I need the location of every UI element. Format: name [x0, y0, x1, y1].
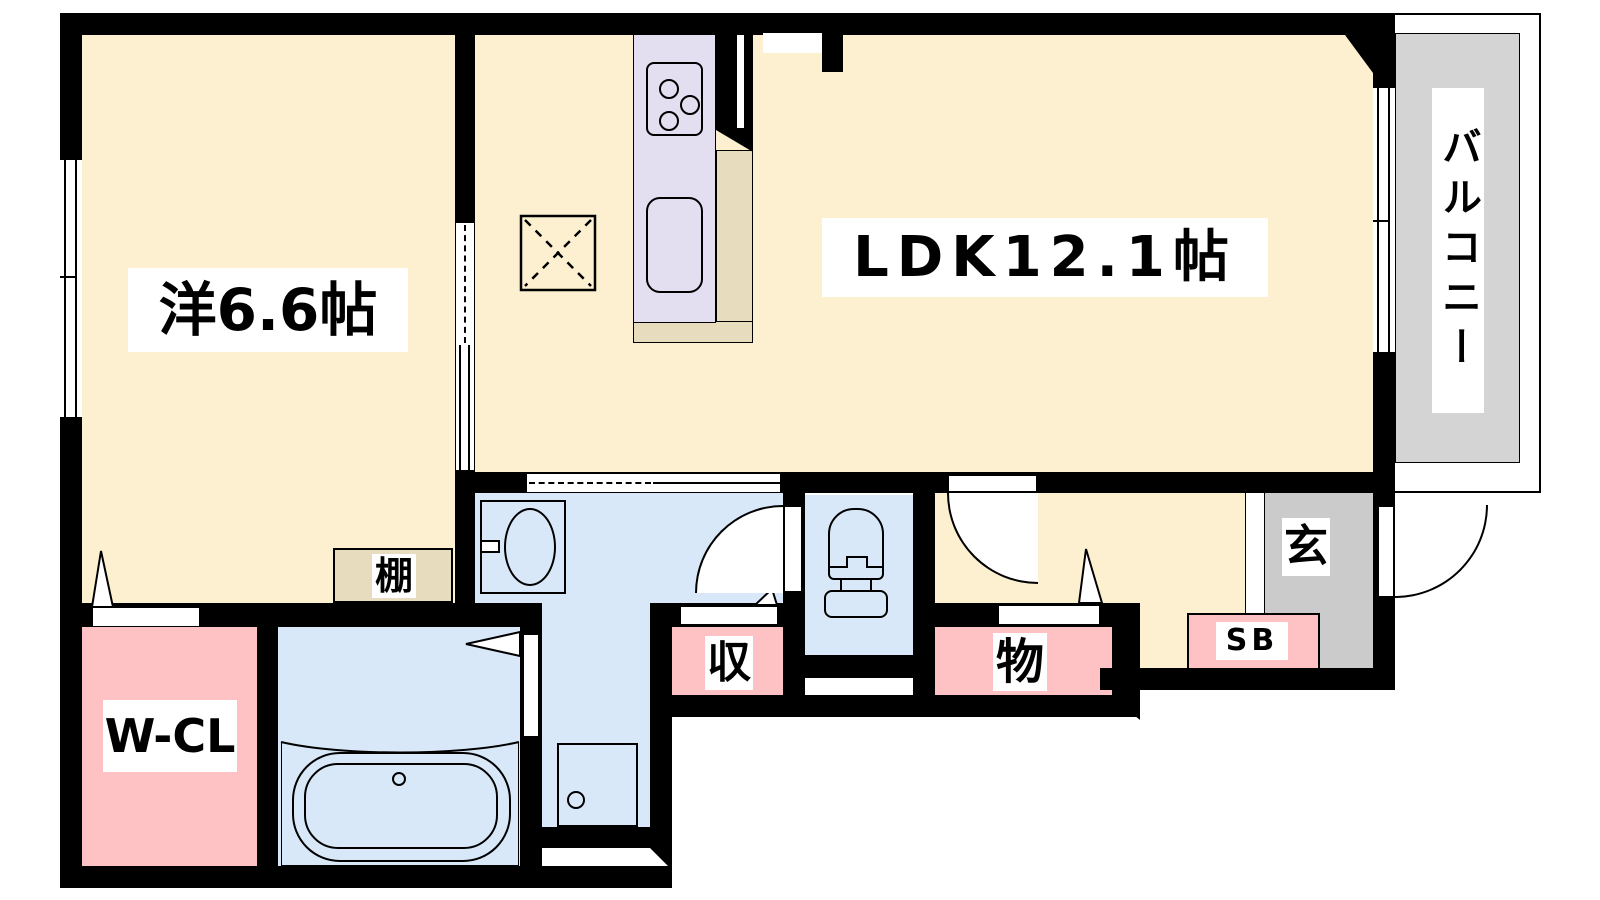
ldk-label: LDK12.1帖 — [822, 218, 1268, 297]
window-toilet-bottom — [805, 678, 913, 695]
bathroom-door-leaf — [522, 633, 540, 738]
pillar-slit — [737, 35, 744, 128]
kitchen-countertop-bottom — [633, 321, 753, 343]
wall-bottom-middle — [650, 695, 1120, 717]
wcl-label: W-CL — [103, 700, 237, 772]
floor-hatch-icon — [519, 214, 597, 292]
door-leaf-line — [653, 482, 780, 484]
stove-burner-icon — [680, 95, 700, 115]
wall-left — [60, 13, 82, 888]
wall-toilet-right — [913, 493, 935, 697]
front-door-swing — [1395, 505, 1488, 598]
toilet-seat-notch — [846, 556, 868, 568]
entrance-label: 玄 — [1282, 518, 1330, 576]
wall-corridor-bottom — [542, 827, 650, 848]
bathroom-door-wedge-icon — [462, 629, 524, 659]
front-door-leaf — [1377, 505, 1395, 598]
closet-label: 収 — [705, 636, 753, 690]
sliding-door-leaf — [456, 345, 474, 470]
washbasin-tap-icon — [480, 540, 500, 553]
wall-corridor-right — [650, 605, 672, 848]
wall-toilet-bottom — [805, 655, 913, 678]
wcl-opening — [92, 607, 200, 627]
closet-opening — [680, 606, 778, 625]
door-leaf-line — [459, 345, 461, 470]
stove-burner-icon — [659, 111, 679, 131]
door-leaf-line — [468, 345, 470, 470]
window-center-tick — [60, 276, 77, 278]
wall-kitchen-pillar2 — [822, 33, 843, 72]
balcony-label: バルコニー — [1432, 88, 1484, 413]
window-corridor-bottom — [542, 848, 650, 866]
storage-door-wedge-icon — [1074, 546, 1106, 606]
sliding-door-track — [527, 474, 653, 492]
sliding-door-dashed-line — [529, 482, 651, 484]
western-room-label: 洋6.6帖 — [128, 268, 408, 352]
washing-machine-pan — [557, 743, 638, 827]
wall-top — [60, 13, 1395, 35]
window-balcony — [1373, 88, 1395, 352]
kitchen-sink — [646, 197, 703, 293]
window-kitchen-top — [763, 33, 822, 53]
sliding-door-dashed-line — [464, 225, 466, 343]
wall-kitchen-pillar — [716, 33, 753, 130]
storage-label: 物 — [993, 633, 1047, 691]
kitchen-stove — [646, 62, 703, 136]
toilet-bowl-icon — [828, 508, 884, 580]
storage-opening — [998, 605, 1100, 625]
toilet-door-leaf — [783, 505, 803, 593]
wall-wcl-bathroom — [257, 627, 278, 866]
washbasin-bowl-icon — [504, 508, 556, 586]
bathtub — [292, 752, 511, 862]
wcl-door-wedge-icon — [88, 548, 118, 610]
pan-drain-icon — [567, 791, 585, 809]
washbasin — [480, 500, 566, 594]
sliding-door-leaf — [653, 474, 780, 492]
window-frame-line — [75, 160, 77, 417]
window-western-room — [60, 160, 82, 417]
sliding-door-track — [456, 223, 474, 345]
floor-plan: 洋6.6帖 LDK12.1帖 バルコニー W-CL 棚 収 物 玄 SB — [0, 0, 1600, 900]
shelf-label: 棚 — [372, 554, 416, 598]
window-center-tick — [1373, 220, 1390, 222]
hallway-door-leaf — [947, 474, 1038, 493]
toilet-tank-icon — [824, 590, 888, 618]
bathtub-drain-icon — [392, 772, 406, 786]
entrance-step-opening — [1245, 493, 1265, 613]
kitchen-countertop-right — [716, 150, 753, 343]
shoe-box-label: SB — [1216, 622, 1288, 660]
wall-bottom-left — [60, 866, 672, 888]
stove-burner-icon — [659, 79, 679, 99]
window-frame-line — [64, 160, 66, 417]
wall-bottom-entrance — [1100, 668, 1395, 690]
